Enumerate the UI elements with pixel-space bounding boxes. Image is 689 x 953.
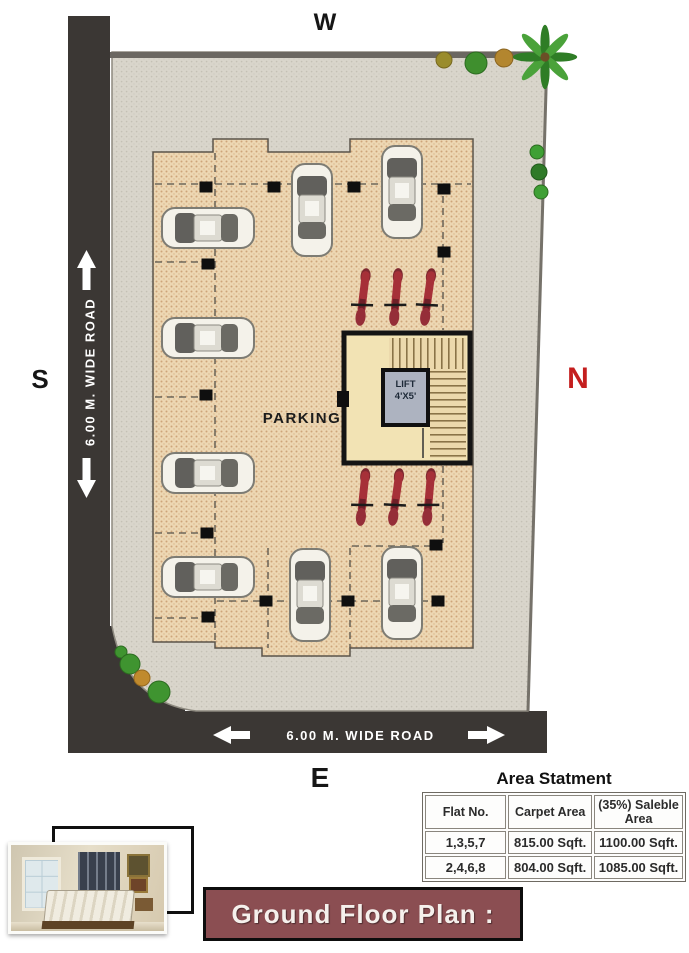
bush-icon [148, 681, 170, 703]
ground-floor-plan-sheet: W S N E 6.00 M. WIDE ROAD 6.00 M. WIDE R… [0, 0, 689, 953]
photo-bed [43, 890, 134, 925]
compass-north: N [556, 364, 600, 394]
column-header-saleble-area: (35%) Saleble Area [594, 795, 683, 829]
table-row: 2,4,6,8 804.00 Sqft. 1085.00 Sqft. [425, 856, 683, 879]
area-statement: Area Statment Flat No. Carpet Area (35%)… [422, 769, 686, 882]
car-icon [162, 557, 254, 597]
lift-label-line1: LIFT [383, 379, 428, 391]
car-icon [382, 547, 422, 639]
parking-label: PARKING [252, 411, 352, 426]
car-icon [162, 453, 254, 493]
car-icon [382, 146, 422, 238]
stair-treads-top [389, 338, 466, 369]
photo-bed-base [41, 921, 134, 929]
bush-icon [134, 670, 150, 686]
plan-title-plate: Ground Floor Plan : [203, 887, 523, 941]
bush-icon [120, 654, 140, 674]
bedroom-photo [8, 842, 167, 934]
area-statement-title: Area Statment [422, 769, 686, 789]
flat-no-cell: 2,4,6,8 [425, 856, 506, 879]
bottom-road-label: 6.00 M. WIDE ROAD [253, 728, 468, 743]
saleble-area-cell: 1085.00 Sqft. [594, 856, 683, 879]
bush-icon [534, 185, 548, 199]
bush-icon [436, 52, 452, 68]
carpet-area-cell: 804.00 Sqft. [508, 856, 592, 879]
photo-wall-art [127, 854, 149, 876]
car-icon [290, 549, 330, 641]
bush-icon [465, 52, 487, 74]
car-icon [292, 164, 332, 256]
palm-tree-icon [513, 25, 577, 89]
compass-west: W [305, 11, 345, 35]
compass-east: E [296, 764, 344, 792]
car-icon [162, 208, 254, 248]
lift-label-line2: 4'X5' [383, 391, 428, 403]
flat-no-cell: 1,3,5,7 [425, 831, 506, 854]
lift-label: LIFT 4'X5' [383, 379, 428, 403]
photo-nightstand [135, 898, 153, 911]
plan-title: Ground Floor Plan : [231, 899, 494, 930]
bush-icon [530, 145, 544, 159]
stair-treads-right [430, 369, 466, 458]
car-icon [162, 318, 254, 358]
carpet-area-cell: 815.00 Sqft. [508, 831, 592, 854]
compass-south: S [20, 366, 60, 392]
table-row: 1,3,5,7 815.00 Sqft. 1100.00 Sqft. [425, 831, 683, 854]
table-header-row: Flat No. Carpet Area (35%) Saleble Area [425, 795, 683, 829]
column-header-carpet-area: Carpet Area [508, 795, 592, 829]
left-road-label: 6.00 M. WIDE ROAD [83, 298, 98, 446]
bush-icon [531, 164, 547, 180]
area-statement-table: Flat No. Carpet Area (35%) Saleble Area … [422, 792, 686, 882]
bush-icon [495, 49, 513, 67]
saleble-area-cell: 1100.00 Sqft. [594, 831, 683, 854]
column-header-flat-no: Flat No. [425, 795, 506, 829]
